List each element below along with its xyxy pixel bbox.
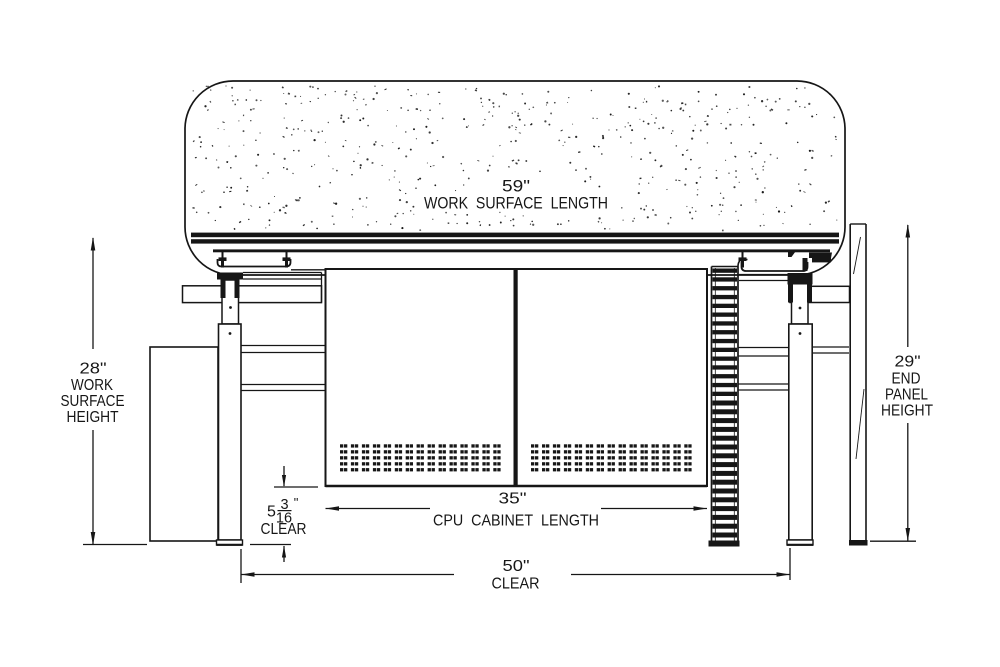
svg-text:CPU CABINET LENGTH: CPU CABINET LENGTH [433,513,599,530]
svg-text:": " [294,495,299,510]
svg-text:50": 50" [503,558,530,575]
svg-text:35": 35" [499,491,527,508]
svg-text:END: END [892,371,921,388]
svg-text:WORK: WORK [71,377,113,394]
svg-text:WORK SURFACE LENGTH: WORK SURFACE LENGTH [424,194,608,213]
svg-text:SURFACE: SURFACE [61,393,125,410]
svg-text:28": 28" [80,361,107,378]
svg-text:HEIGHT: HEIGHT [67,409,119,426]
svg-text:29": 29" [895,354,921,371]
svg-text:HEIGHT: HEIGHT [881,403,933,420]
svg-text:CLEAR: CLEAR [492,576,540,593]
svg-text:CLEAR: CLEAR [261,521,307,538]
svg-text:5: 5 [267,504,276,521]
svg-text:PANEL: PANEL [885,387,928,404]
